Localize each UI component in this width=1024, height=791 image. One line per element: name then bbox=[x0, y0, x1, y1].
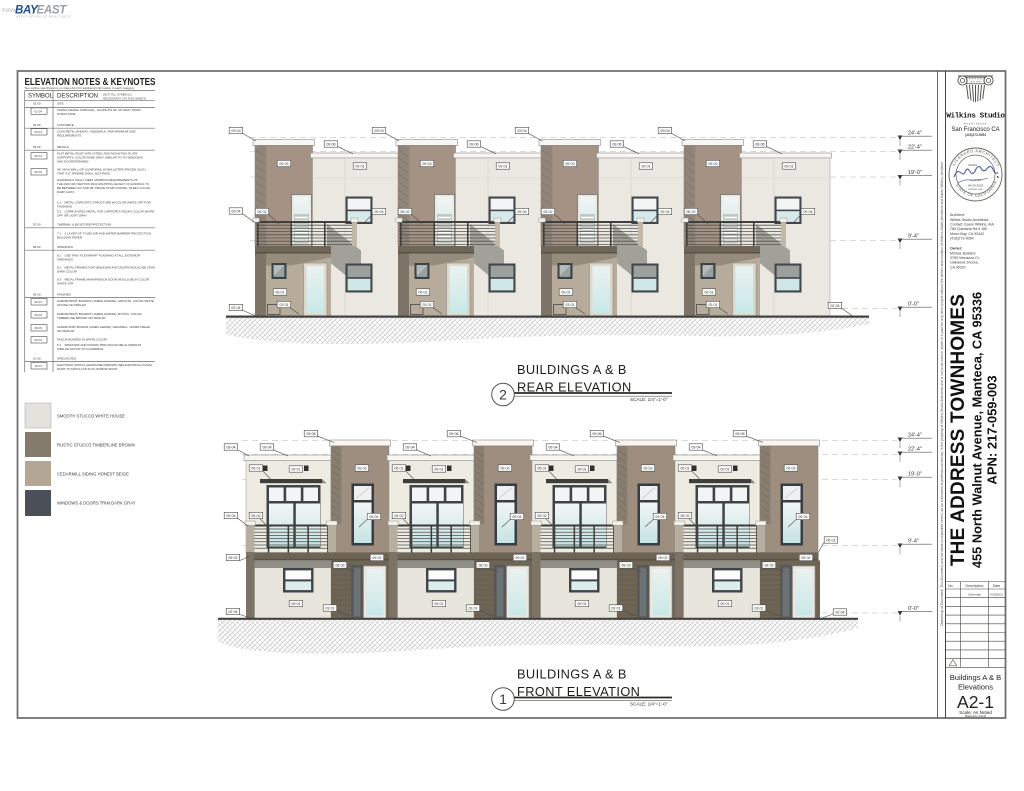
svg-text:METALS: METALS bbox=[57, 145, 69, 149]
svg-text:PAINT TO MATCH STUCCO W/WDW SK: PAINT TO MATCH STUCCO W/WDW SKINS bbox=[57, 367, 117, 371]
svg-text:02 04: 02 04 bbox=[35, 110, 43, 114]
svg-text:10 01: 10 01 bbox=[35, 364, 43, 368]
svg-text:Wilkes Studio Architects: Wilkes Studio Architects bbox=[950, 218, 989, 222]
svg-text:Description: Description bbox=[966, 584, 984, 588]
svg-text:Oakwood Shores,: Oakwood Shores, bbox=[950, 261, 979, 265]
svg-text:DARK COLOR: DARK COLOR bbox=[57, 270, 78, 274]
svg-text:09 02: 09 02 bbox=[228, 556, 237, 560]
svg-text:09 03: 09 03 bbox=[35, 326, 43, 330]
svg-text:BUILDING PAPER: BUILDING PAPER bbox=[57, 236, 83, 240]
svg-text:HOUSE OR SIMILAR: HOUSE OR SIMILAR bbox=[57, 303, 87, 307]
svg-text:KAREN: KAREN bbox=[968, 163, 977, 167]
svg-text:19'-0": 19'-0" bbox=[908, 170, 922, 176]
svg-text:BUILDINGS A & B: BUILDINGS A & B bbox=[517, 362, 627, 377]
svg-text:Date: Date bbox=[993, 584, 1001, 588]
svg-text:WINDOWS & DOORS TRIM DARK GRAY: WINDOWS & DOORS TRIM DARK GRAY bbox=[57, 501, 136, 506]
svg-text:Wilkins Studio: Wilkins Studio bbox=[946, 113, 1005, 121]
svg-text:RENEWAL DATE: RENEWAL DATE bbox=[968, 188, 983, 191]
svg-text:CA 95337: CA 95337 bbox=[950, 265, 966, 269]
svg-text:03 01: 03 01 bbox=[35, 130, 43, 134]
svg-text:22'-4": 22'-4" bbox=[908, 145, 922, 151]
svg-text:APN: 217-059-003: APN: 217-059-003 bbox=[985, 375, 1000, 484]
svg-text:SMOOTH STUCCO WHITE HOUSE: SMOOTH STUCCO WHITE HOUSE bbox=[57, 414, 125, 419]
svg-text:22'-4": 22'-4" bbox=[908, 447, 922, 453]
svg-text:THE ADDRESS TOWNHOMES: THE ADDRESS TOWNHOMES bbox=[948, 294, 969, 566]
svg-text:DESCRIPTION: DESCRIPTION bbox=[57, 94, 98, 100]
svg-text:NECESSARY ON THIS SHEET): NECESSARY ON THIS SHEET) bbox=[103, 97, 146, 101]
svg-text:09 04: 09 04 bbox=[35, 338, 43, 342]
svg-text:©2024: ©2024 bbox=[2, 7, 16, 13]
svg-text:Morro Bay, CA 93442: Morro Bay, CA 93442 bbox=[950, 232, 984, 236]
svg-text:02 04: 02 04 bbox=[228, 610, 237, 614]
svg-text:CEDARMILL SIDING HONEST BEIGE: CEDARMILL SIDING HONEST BEIGE bbox=[57, 472, 129, 477]
svg-text:05 01: 05 01 bbox=[826, 539, 835, 543]
svg-text:02 04: 02 04 bbox=[830, 304, 839, 308]
svg-text:05 00: 05 00 bbox=[33, 145, 41, 149]
svg-text:9'-4": 9'-4" bbox=[908, 539, 919, 545]
svg-text:SIMILAR COLOR TO GUARDRAIL: SIMILAR COLOR TO GUARDRAIL bbox=[57, 347, 104, 351]
svg-text:SCALE: 1/4"=1'-0": SCALE: 1/4"=1'-0" bbox=[630, 701, 668, 706]
svg-text:19'-0": 19'-0" bbox=[908, 472, 922, 478]
svg-text:SPECIALTIES: SPECIALTIES bbox=[57, 357, 76, 361]
svg-text:09 02: 09 02 bbox=[35, 313, 43, 317]
svg-text:07 00: 07 00 bbox=[33, 223, 41, 227]
svg-text:OPENINGS: OPENINGS bbox=[57, 245, 73, 249]
svg-text:DARK GRAY.: DARK GRAY. bbox=[57, 190, 75, 194]
svg-text:Owner:: Owner: bbox=[950, 247, 962, 251]
svg-text:THERMAL & MOISTURE PROTECTION: THERMAL & MOISTURE PROTECTION bbox=[57, 223, 111, 227]
svg-text:09 00: 09 00 bbox=[33, 293, 41, 297]
svg-text:08 00: 08 00 bbox=[33, 245, 41, 249]
svg-text:0'-0": 0'-0" bbox=[908, 302, 919, 308]
svg-text:10 00: 10 00 bbox=[33, 357, 41, 361]
svg-text:SCALE: 1/4"=1'-0": SCALE: 1/4"=1'-0" bbox=[630, 397, 668, 402]
svg-text:1: 1 bbox=[499, 691, 507, 707]
svg-text:FASCIA BOARDS IN WHITE COLOR: FASCIA BOARDS IN WHITE COLOR bbox=[57, 338, 108, 342]
svg-text:Ownership of Document: This Do: Ownership of Document: This Document and… bbox=[940, 162, 944, 626]
svg-text:Submittal: Submittal bbox=[968, 592, 981, 596]
svg-text:09 04: 09 04 bbox=[226, 446, 235, 450]
svg-text:CONCRETE: CONCRETE bbox=[57, 123, 74, 127]
svg-text:02 04: 02 04 bbox=[231, 306, 240, 310]
svg-text:09 04: 09 04 bbox=[226, 514, 235, 518]
svg-text:BUILDINGS A & B: BUILDINGS A & B bbox=[517, 667, 627, 682]
svg-text:24'-4": 24'-4" bbox=[908, 433, 922, 439]
svg-text:OFF OR LIGHT GRAY: OFF OR LIGHT GRAY bbox=[57, 214, 87, 218]
svg-text:2: 2 bbox=[499, 387, 507, 403]
svg-text:785 Quintana Rd # 180: 785 Quintana Rd # 180 bbox=[950, 227, 987, 231]
svg-text:07/19/2021: 07/19/2021 bbox=[990, 592, 1004, 596]
svg-text:03 00: 03 00 bbox=[33, 123, 41, 127]
svg-text:Buildings A & B: Buildings A & B bbox=[950, 673, 1002, 682]
svg-text:Architects: Architects bbox=[964, 122, 987, 126]
svg-text:SITE: SITE bbox=[57, 102, 64, 106]
svg-text:(415)273-9054: (415)273-9054 bbox=[950, 236, 974, 240]
svg-text:See outline specifications on: See outline specifications on sheet A2.4… bbox=[25, 86, 135, 90]
svg-text:Architect:: Architect: bbox=[950, 213, 965, 217]
svg-text:THAT 4.0" SPHERE SHALL NOT PAS: THAT 4.0" SPHERE SHALL NOT PASS. bbox=[57, 172, 111, 176]
svg-text:OPENINGS: OPENINGS bbox=[57, 258, 73, 262]
svg-text:WHITE OFF: WHITE OFF bbox=[57, 282, 74, 286]
svg-text:(415)273-9054: (415)273-9054 bbox=[965, 133, 986, 137]
svg-text:Contact: Karen Wilkins, AIA: Contact: Karen Wilkins, AIA bbox=[950, 223, 995, 227]
svg-text:02 00: 02 00 bbox=[33, 102, 41, 106]
svg-text:OR SIMILAR: OR SIMILAR bbox=[57, 329, 75, 333]
svg-text:No.: No. bbox=[948, 584, 954, 588]
svg-text:STRUCTURE: STRUCTURE bbox=[57, 112, 76, 116]
svg-text:02 04: 02 04 bbox=[835, 611, 844, 615]
svg-text:24'-4": 24'-4" bbox=[908, 131, 922, 137]
svg-text:Elevations: Elevations bbox=[958, 683, 993, 692]
svg-text:TIMBERLINE BROWN OR SIMILAR: TIMBERLINE BROWN OR SIMILAR bbox=[57, 316, 106, 320]
svg-text:SYMBOL: SYMBOL bbox=[28, 94, 54, 100]
svg-text:09 01: 09 01 bbox=[35, 300, 43, 304]
svg-text:05 01: 05 01 bbox=[35, 154, 43, 158]
svg-text:RUSTIC STUCCO TIMBERLINE BROWN: RUSTIC STUCCO TIMBERLINE BROWN bbox=[57, 443, 135, 448]
svg-text:Scale: As Noted: Scale: As Noted bbox=[959, 710, 992, 715]
svg-text:09 04: 09 04 bbox=[231, 210, 240, 214]
svg-text:9'-4": 9'-4" bbox=[908, 234, 919, 240]
svg-text:0'-0": 0'-0" bbox=[908, 606, 919, 612]
svg-text:REQUIREMENTS: REQUIREMENTS bbox=[57, 133, 81, 137]
svg-text:04-30-2023: 04-30-2023 bbox=[968, 184, 984, 188]
svg-text:3783 Vernazza Ct,: 3783 Vernazza Ct, bbox=[950, 256, 980, 260]
svg-text:455 North Walnut Avenue, Mante: 455 North Walnut Avenue, Manteca, CA 953… bbox=[970, 292, 985, 568]
svg-text:Sheet size: Arch D: Sheet size: Arch D bbox=[965, 714, 986, 718]
svg-text:Minhas Builders: Minhas Builders bbox=[950, 252, 976, 256]
svg-text:ASSOCIATION OF REALTORS®: ASSOCIATION OF REALTORS® bbox=[16, 15, 71, 19]
svg-text:FINISHES: FINISHES bbox=[57, 293, 71, 297]
svg-text:FINISHING.: FINISHING. bbox=[57, 205, 73, 209]
svg-text:AND DOORS/FRAMES: AND DOORS/FRAMES bbox=[57, 159, 89, 163]
svg-text:05 02: 05 02 bbox=[35, 170, 43, 174]
